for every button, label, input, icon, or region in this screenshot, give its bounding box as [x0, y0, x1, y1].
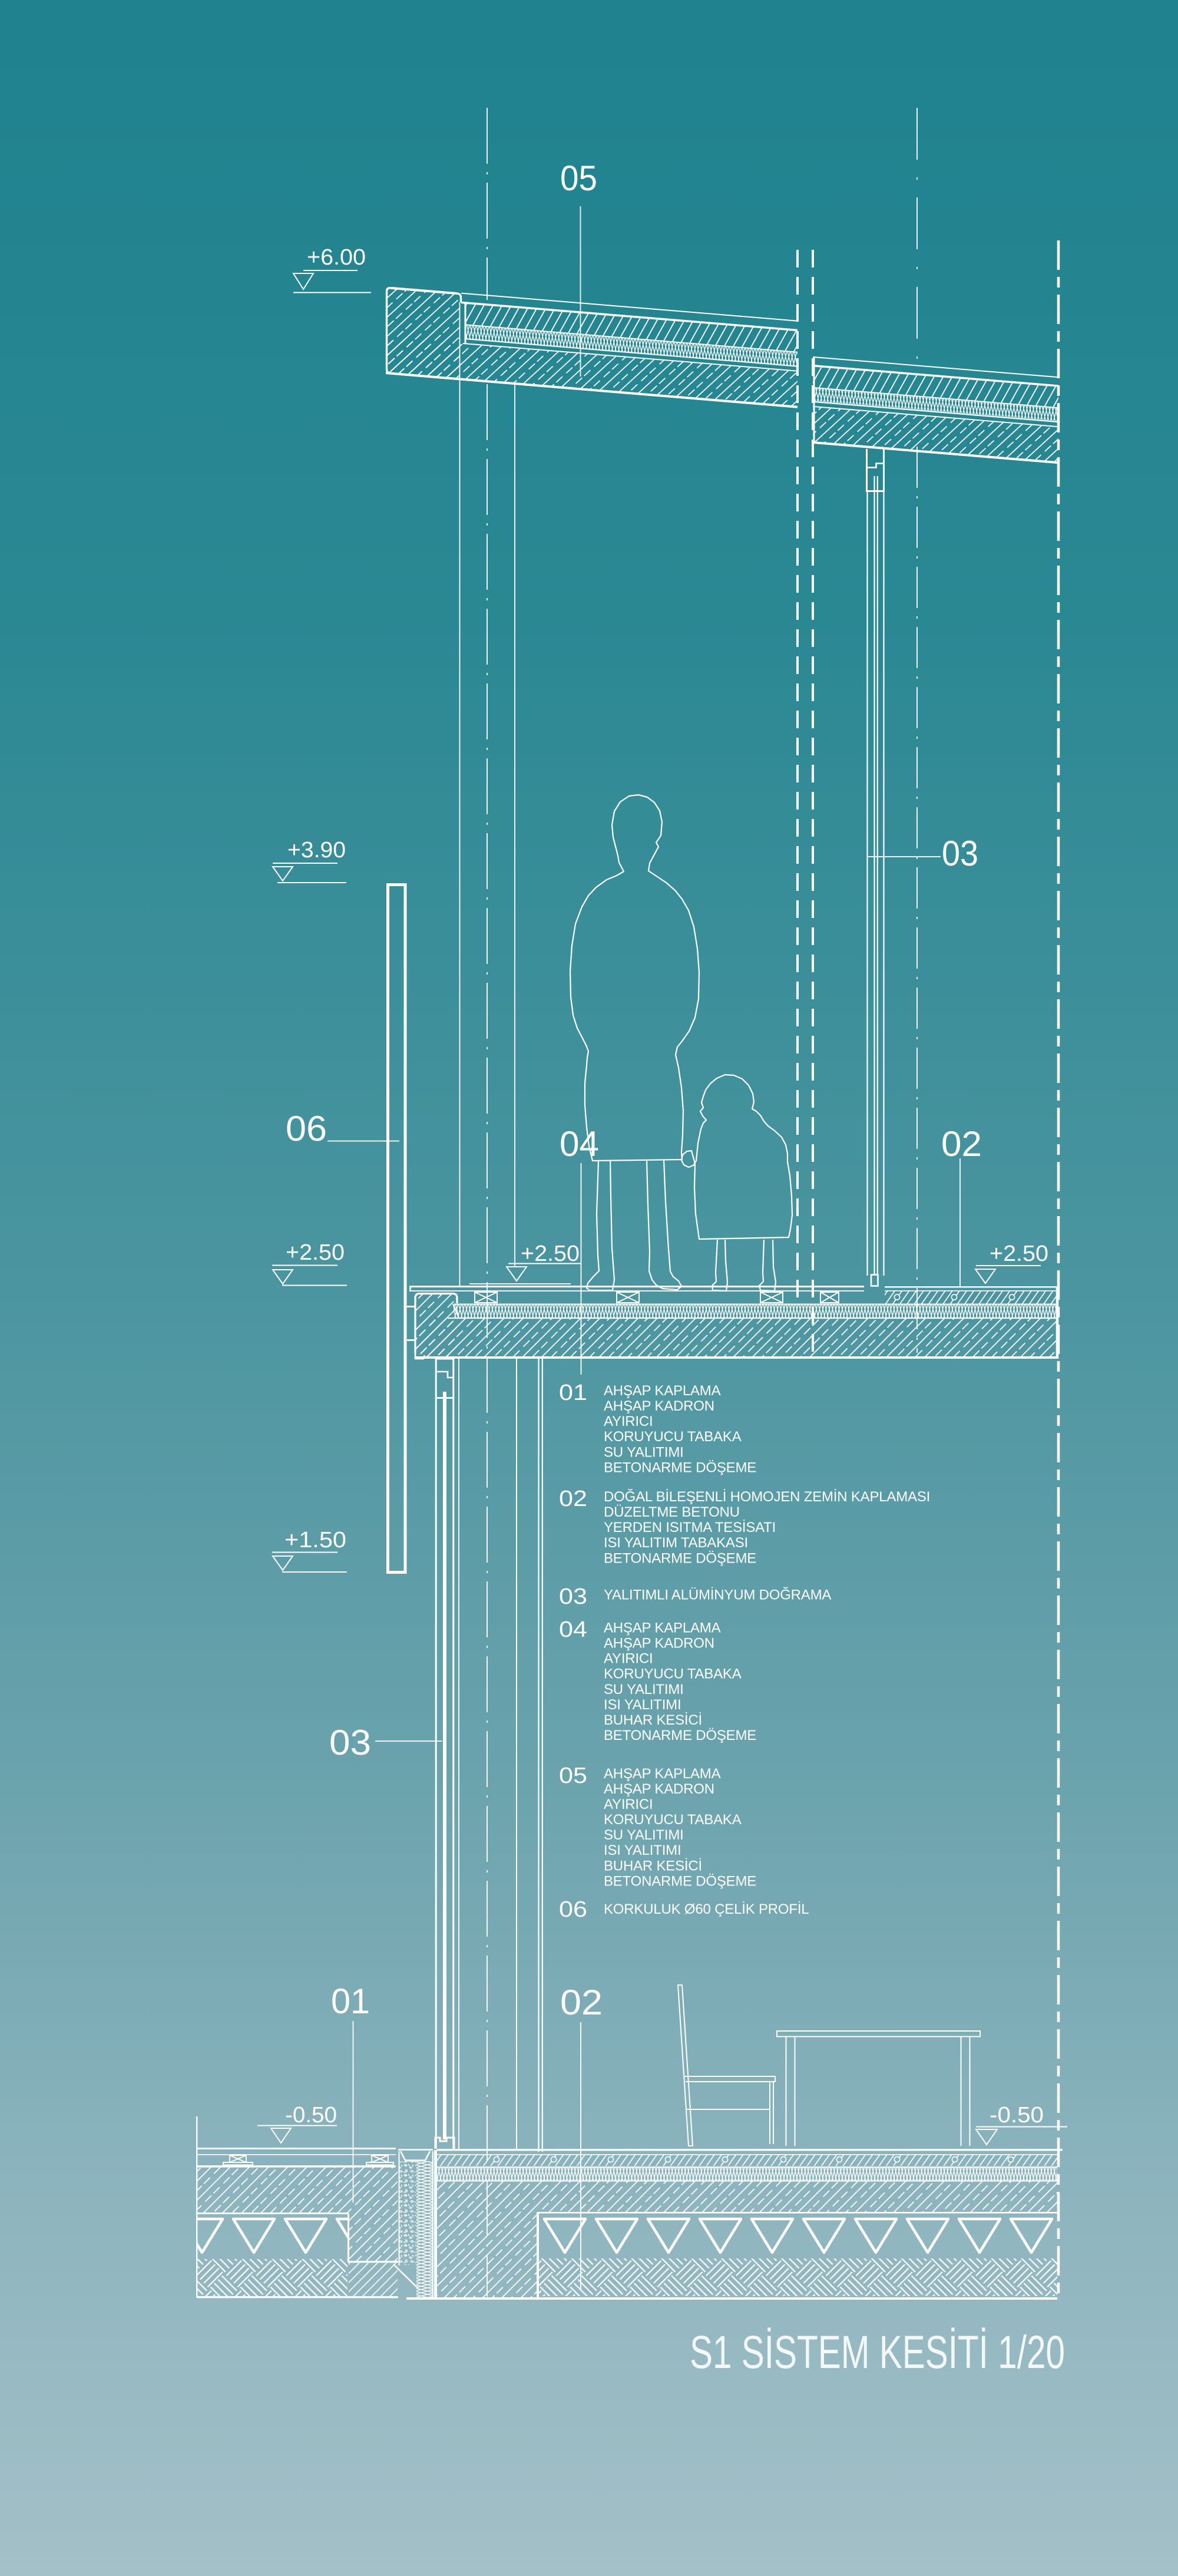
svg-text:BETONARME DÖŞEME: BETONARME DÖŞEME — [604, 1551, 756, 1567]
svg-text:06: 06 — [286, 1109, 327, 1148]
svg-text:02: 02 — [559, 1487, 587, 1511]
svg-text:S1 SİSTEM KESİTİ 1/20: S1 SİSTEM KESİTİ 1/20 — [690, 2326, 1065, 2378]
svg-text:+2.50: +2.50 — [286, 1240, 345, 1265]
svg-text:AHŞAP KAPLAMA: AHŞAP KAPLAMA — [604, 1620, 721, 1636]
svg-text:+6.00: +6.00 — [307, 245, 366, 270]
svg-text:04: 04 — [559, 1617, 587, 1642]
svg-text:KORUYUCU TABAKA: KORUYUCU TABAKA — [604, 1429, 742, 1445]
svg-text:03: 03 — [942, 834, 978, 873]
svg-text:AYIRICI: AYIRICI — [604, 1796, 653, 1812]
svg-text:BETONARME DÖŞEME: BETONARME DÖŞEME — [604, 1874, 756, 1890]
svg-text:SU YALITIMI: SU YALITIMI — [604, 1827, 684, 1843]
svg-text:03: 03 — [559, 1584, 587, 1609]
svg-text:BETONARME DÖŞEME: BETONARME DÖŞEME — [604, 1460, 756, 1476]
svg-text:ISI YALITIMI: ISI YALITIMI — [604, 1697, 681, 1713]
svg-text:03: 03 — [329, 1723, 371, 1762]
svg-text:KORUYUCU TABAKA: KORUYUCU TABAKA — [604, 1666, 742, 1682]
svg-text:06: 06 — [559, 1897, 587, 1922]
svg-text:SU YALITIMI: SU YALITIMI — [604, 1682, 684, 1697]
svg-text:02: 02 — [560, 1983, 603, 2022]
svg-text:05: 05 — [560, 158, 597, 198]
svg-text:AHŞAP KADRON: AHŞAP KADRON — [604, 1781, 714, 1797]
svg-text:AYIRICI: AYIRICI — [604, 1651, 653, 1667]
svg-text:BETONARME DÖŞEME: BETONARME DÖŞEME — [604, 1728, 756, 1743]
svg-text:YALITIMLI ALÜMİNYUM DOĞRAMA: YALITIMLI ALÜMİNYUM DOĞRAMA — [604, 1587, 831, 1603]
svg-text:-0.50: -0.50 — [285, 2103, 337, 2128]
svg-text:KORUYUCU TABAKA: KORUYUCU TABAKA — [604, 1812, 742, 1828]
svg-text:01: 01 — [559, 1381, 587, 1405]
svg-text:AHŞAP KAPLAMA: AHŞAP KAPLAMA — [604, 1383, 721, 1399]
svg-text:AHŞAP KADRON: AHŞAP KADRON — [604, 1636, 714, 1652]
svg-text:BUHAR KESİCİ: BUHAR KESİCİ — [604, 1712, 702, 1728]
svg-text:DOĞAL BİLEŞENLİ HOMOJEN ZEMİN: DOĞAL BİLEŞENLİ HOMOJEN ZEMİN KAPLAMASI — [604, 1489, 930, 1505]
svg-text:01: 01 — [331, 1981, 370, 2021]
svg-text:AHŞAP KADRON: AHŞAP KADRON — [604, 1398, 714, 1414]
svg-text:04: 04 — [560, 1124, 599, 1164]
svg-text:ISI YALITIM TABAKASI: ISI YALITIM TABAKASI — [604, 1535, 748, 1551]
svg-text:ISI YALITIMI: ISI YALITIMI — [604, 1842, 681, 1858]
svg-text:+3.90: +3.90 — [287, 838, 346, 863]
svg-text:AHŞAP KAPLAMA: AHŞAP KAPLAMA — [604, 1766, 721, 1782]
svg-text:BUHAR KESİCİ: BUHAR KESİCİ — [604, 1858, 702, 1874]
svg-text:02: 02 — [941, 1124, 982, 1164]
svg-text:AYIRICI: AYIRICI — [604, 1414, 653, 1429]
svg-text:KORKULUK Ø60 ÇELİK PROFİL: KORKULUK Ø60 ÇELİK PROFİL — [604, 1901, 809, 1917]
svg-text:-0.50: -0.50 — [990, 2103, 1044, 2128]
svg-text:DÜZELTME BETONU: DÜZELTME BETONU — [604, 1504, 740, 1520]
svg-text:+2.50: +2.50 — [521, 1241, 580, 1266]
svg-text:+1.50: +1.50 — [284, 1528, 346, 1553]
svg-text:+2.50: +2.50 — [990, 1241, 1048, 1266]
svg-text:YERDEN ISITMA TESİSATI: YERDEN ISITMA TESİSATI — [604, 1520, 776, 1535]
svg-text:05: 05 — [559, 1763, 587, 1788]
svg-text:SU YALITIMI: SU YALITIMI — [604, 1445, 684, 1461]
